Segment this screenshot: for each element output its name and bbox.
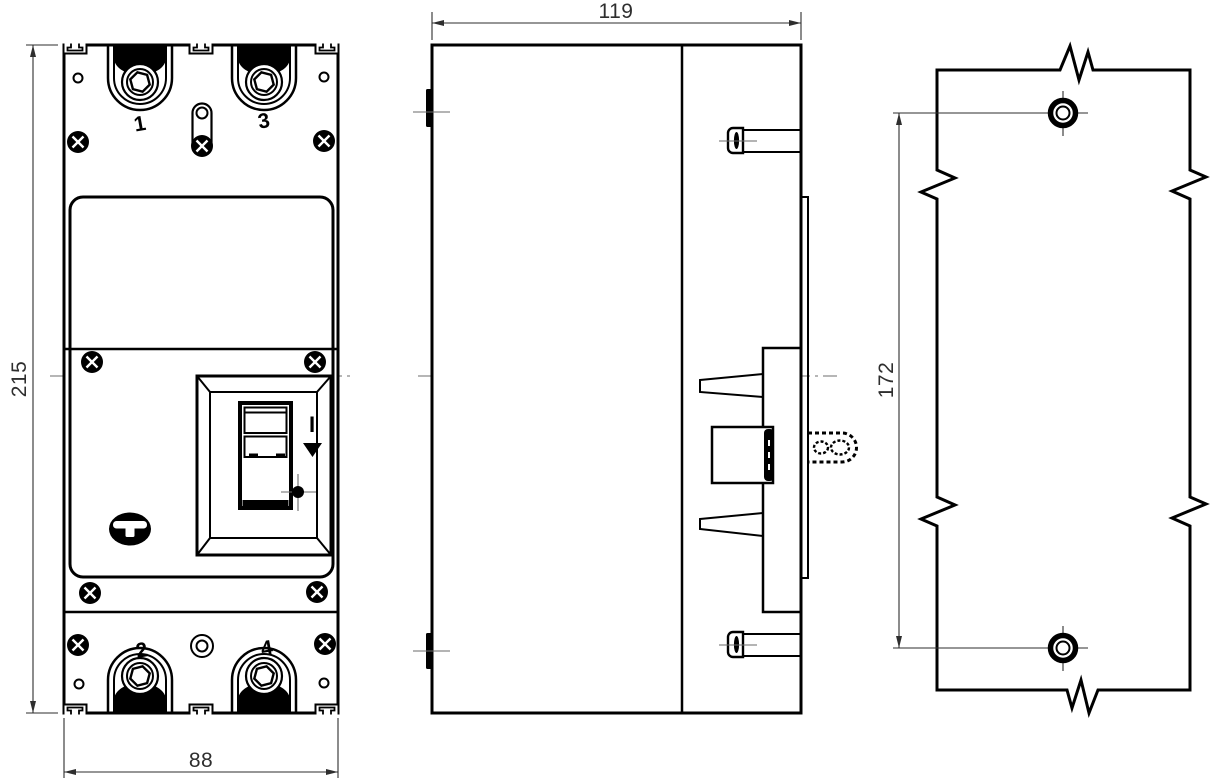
screw-icon — [314, 633, 336, 655]
dim-depth-text: 119 — [599, 0, 634, 23]
mounting-view: 172 — [875, 46, 1206, 713]
dim-height-text: 215 — [8, 361, 31, 398]
screw-icon — [191, 135, 213, 157]
cad-drawing-canvas: 1 3 2 4 — [0, 0, 1220, 782]
screw-icon — [67, 634, 89, 656]
din-notch — [64, 43, 87, 54]
screw-icon — [79, 582, 101, 604]
screw-icon — [81, 351, 103, 373]
din-notch — [190, 704, 213, 715]
din-notch — [316, 43, 339, 54]
dim-width: 88 — [64, 718, 338, 778]
dim-width-text: 88 — [189, 749, 213, 772]
dim-hole-spacing: 172 — [875, 113, 902, 648]
mounting-hole-bottom — [1051, 636, 1076, 661]
on-indicator: I — [309, 412, 315, 437]
toggle-handle-side[interactable] — [808, 433, 857, 462]
brand-logo — [109, 513, 151, 546]
front-view: 1 3 2 4 — [8, 43, 350, 778]
screw-icon — [306, 581, 328, 603]
screw-icon — [304, 351, 326, 373]
din-notch — [316, 704, 339, 715]
dim-depth: 119 — [432, 0, 801, 40]
screw-icon — [313, 130, 335, 152]
dim-height: 215 — [8, 45, 58, 713]
side-tab — [426, 89, 433, 127]
mounting-panel-outline — [921, 46, 1206, 713]
side-body-outline — [432, 45, 801, 713]
drawing-page: 1 3 2 4 — [0, 0, 1220, 782]
escutcheon-block — [712, 427, 773, 483]
dim-hole-spacing-text: 172 — [875, 362, 898, 399]
din-notch — [64, 704, 87, 715]
din-notch — [190, 43, 213, 54]
side-view: 119 — [413, 0, 857, 713]
screw-icon — [67, 131, 89, 153]
mounting-hole-top — [1051, 101, 1076, 126]
